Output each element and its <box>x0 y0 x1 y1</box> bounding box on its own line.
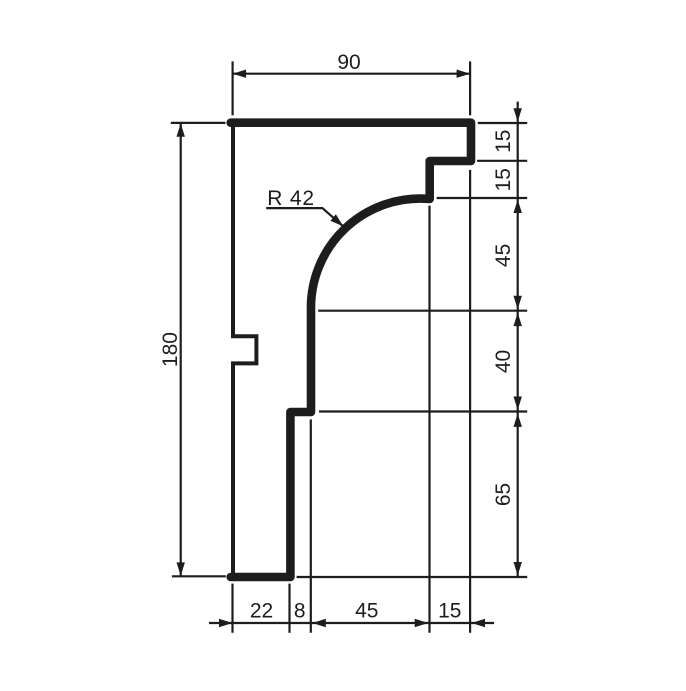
svg-text:180: 180 <box>159 332 182 367</box>
svg-text:R 42: R 42 <box>267 187 315 210</box>
svg-text:40: 40 <box>492 350 515 373</box>
svg-text:45: 45 <box>355 599 378 622</box>
svg-text:8: 8 <box>294 599 306 622</box>
svg-text:90: 90 <box>337 51 360 74</box>
svg-text:15: 15 <box>492 130 515 153</box>
svg-text:65: 65 <box>492 483 515 506</box>
svg-text:22: 22 <box>250 599 273 622</box>
svg-text:15: 15 <box>438 599 461 622</box>
svg-text:45: 45 <box>492 244 515 267</box>
svg-text:15: 15 <box>492 168 515 191</box>
